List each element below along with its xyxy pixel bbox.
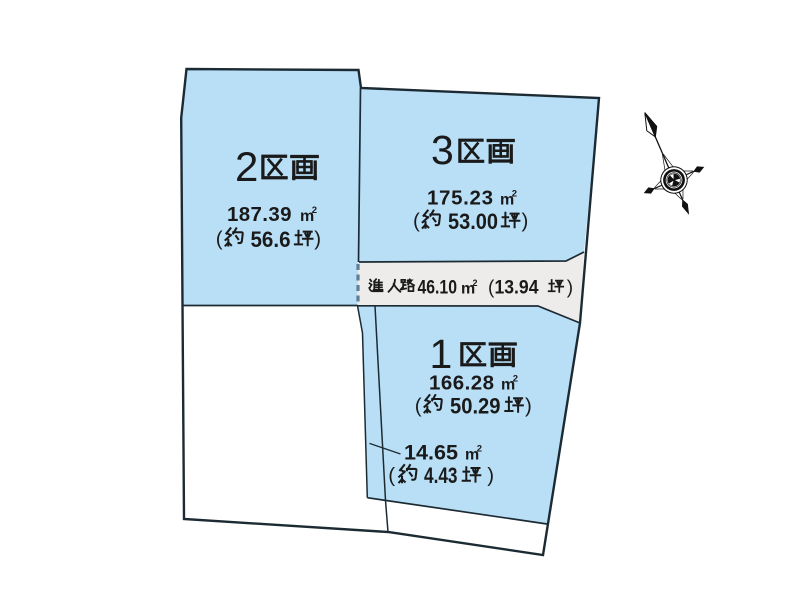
svg-text:): )	[567, 278, 573, 299]
svg-text:56.6: 56.6	[251, 227, 291, 252]
svg-text:): )	[487, 464, 494, 487]
svg-text:2: 2	[235, 143, 258, 190]
svg-text:187.39: 187.39	[227, 203, 292, 226]
svg-text:166.28: 166.28	[429, 372, 494, 395]
svg-text:53.00: 53.00	[448, 209, 498, 234]
svg-text:46.10: 46.10	[418, 277, 458, 299]
svg-text:3: 3	[431, 127, 454, 173]
svg-text:(: (	[413, 210, 420, 233]
svg-text:2: 2	[312, 205, 317, 216]
svg-text:14.65: 14.65	[404, 442, 458, 465]
svg-text:): )	[522, 210, 529, 233]
svg-text:13.94: 13.94	[495, 277, 539, 299]
svg-text:): )	[314, 228, 321, 251]
svg-text:2: 2	[512, 189, 517, 200]
svg-text:4.43: 4.43	[424, 463, 458, 488]
svg-text:175.23: 175.23	[427, 187, 493, 210]
svg-text:2: 2	[473, 278, 478, 288]
svg-text:2: 2	[513, 374, 518, 385]
svg-text:(: (	[216, 228, 223, 251]
svg-text:50.29: 50.29	[450, 394, 501, 419]
svg-text:): )	[525, 395, 532, 418]
svg-text:1: 1	[430, 331, 453, 377]
svg-text:(: (	[415, 395, 422, 418]
svg-text:2: 2	[477, 444, 482, 455]
svg-text:(: (	[388, 464, 395, 487]
